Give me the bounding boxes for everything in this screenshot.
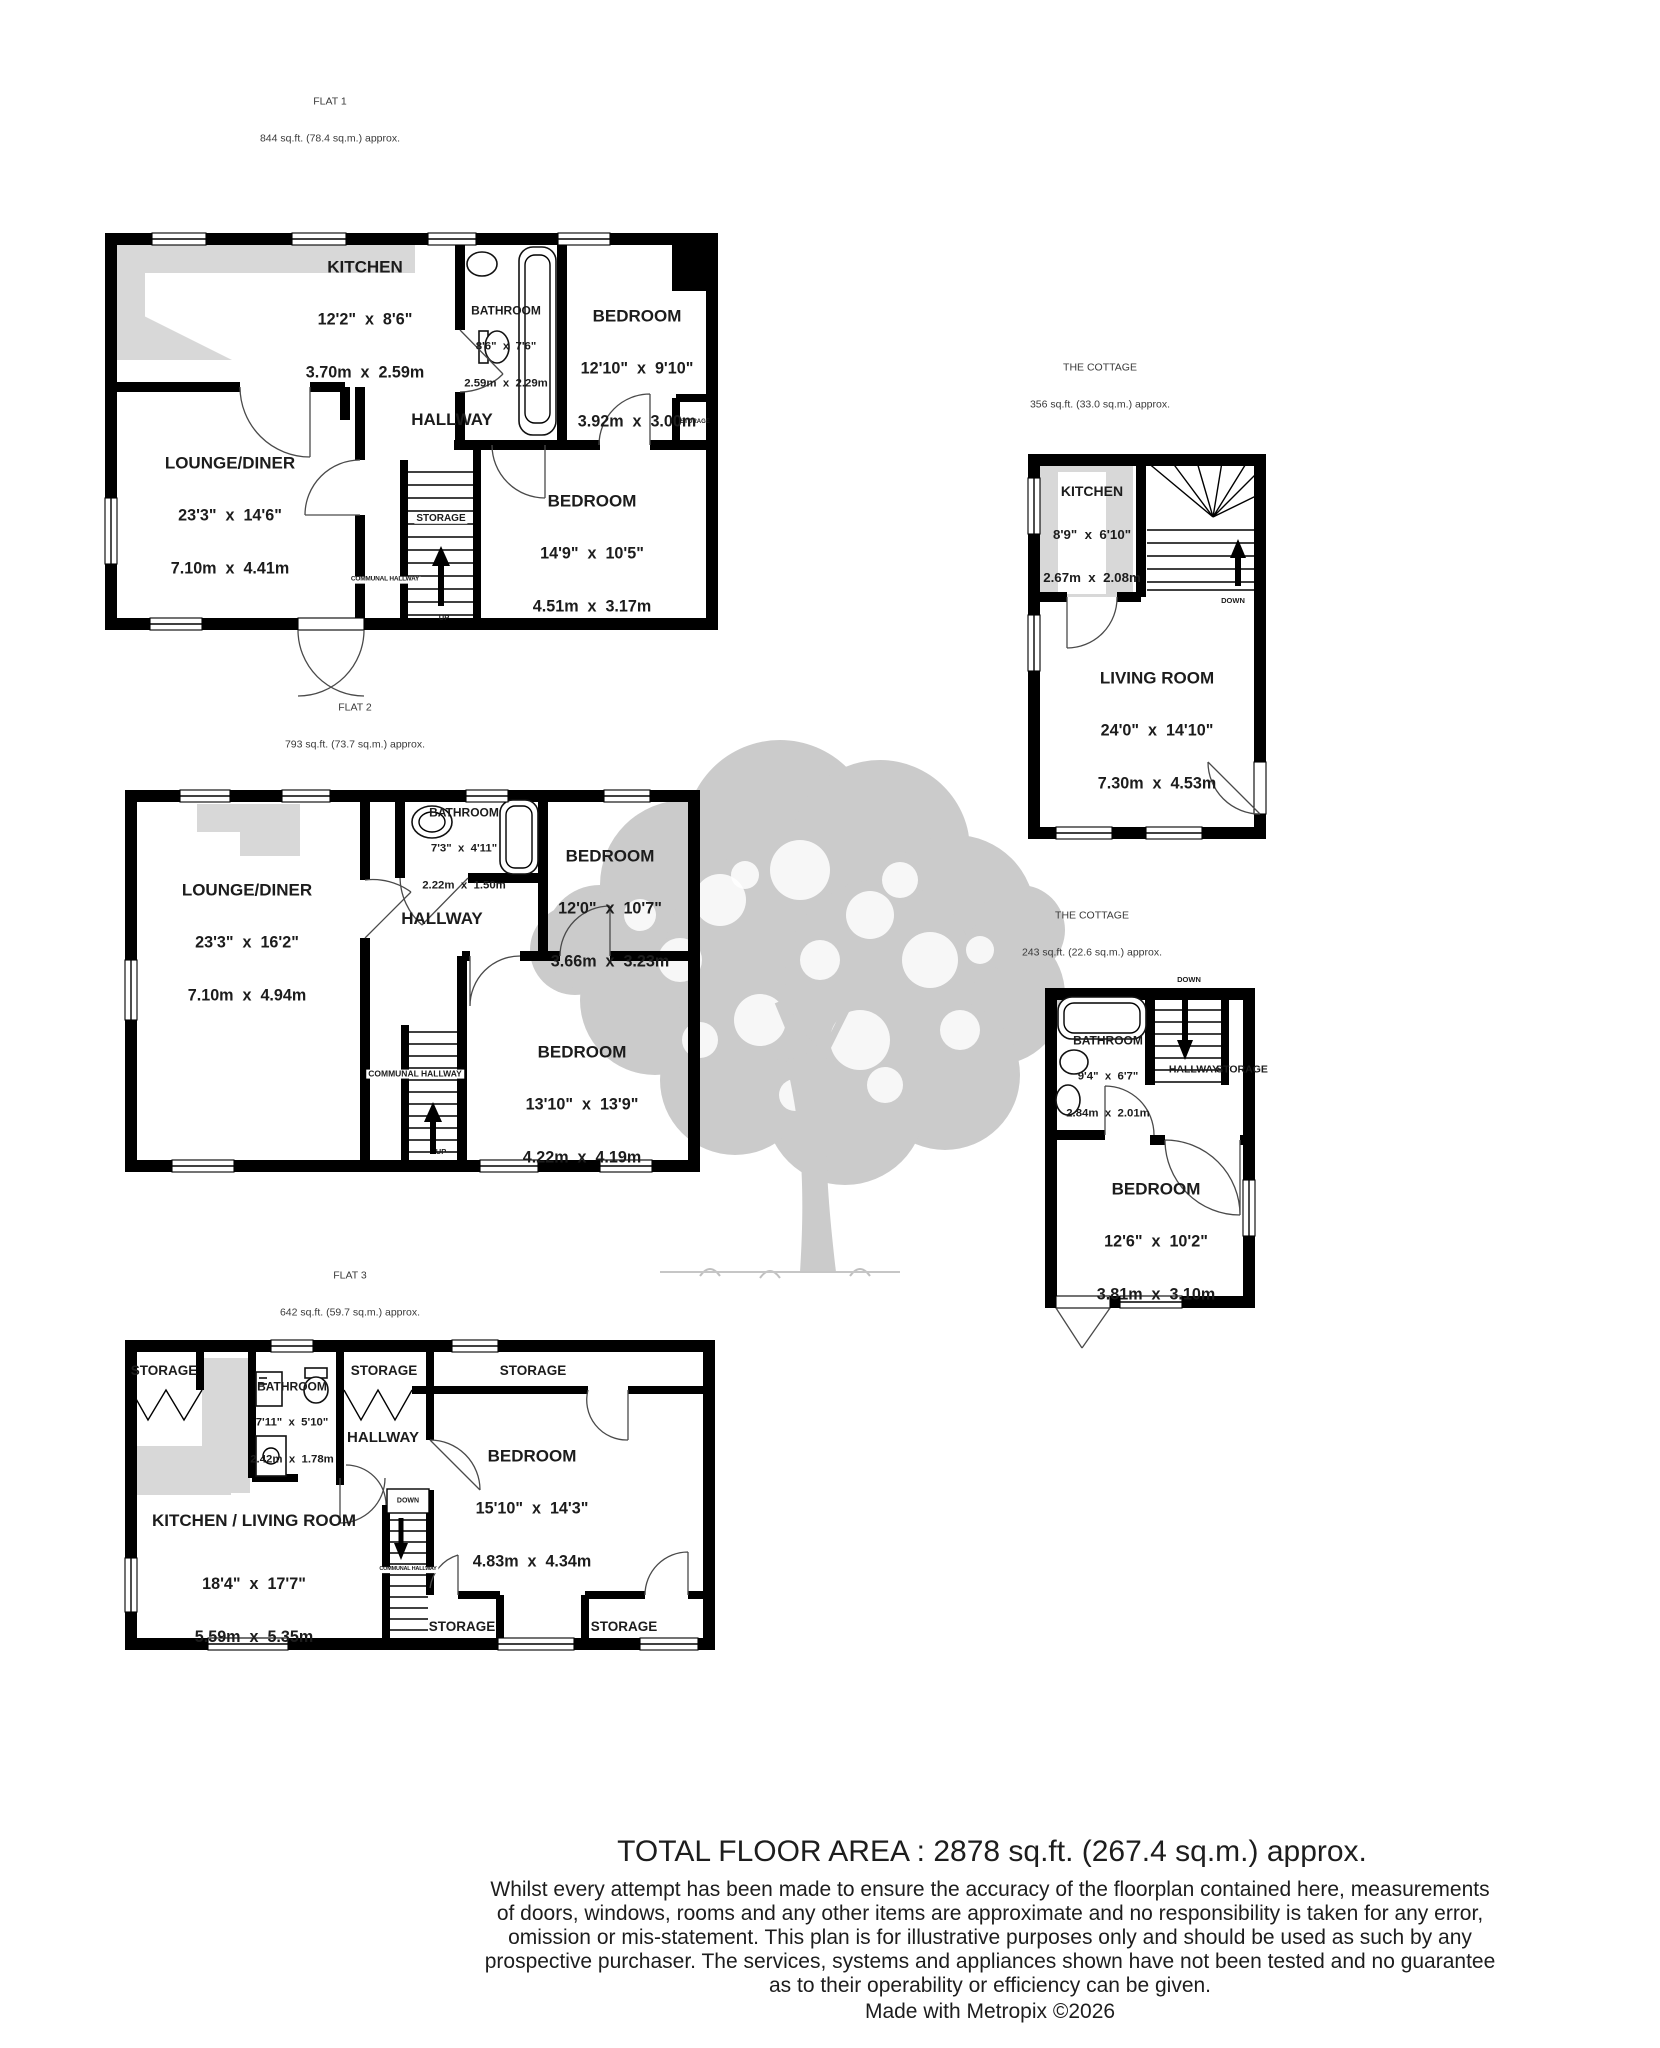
- disclaimer-line-4: prospective purchaser. The services, sys…: [485, 1950, 1496, 1974]
- cottage-ground-down-label: DOWN: [1221, 597, 1245, 605]
- cottage-ground-title: THE COTTAGE 356 sq.ft. (33.0 sq.m.) appr…: [1030, 337, 1170, 424]
- flat1-up-label: UP: [439, 614, 449, 622]
- flat3-communal-hallway-label: COMMUNAL HALLWAY: [377, 1567, 438, 1573]
- flat3-bedroom-label: BEDROOM 15'10" x 14'3" 4.83m x 4.34m: [473, 1413, 591, 1588]
- cottage-first-title: THE COTTAGE 243 sq.ft. (22.6 sq.m.) appr…: [1022, 885, 1162, 972]
- flat1-bedroom1-label: BEDROOM 12'10" x 9'10" 3.92m x 3.00m: [578, 273, 696, 448]
- cottage-kitchen-label: KITCHEN 8'9" x 6'10" 2.67m x 2.08m: [1043, 455, 1141, 599]
- cottage-ground-title-area: 356 sq.ft. (33.0 sq.m.) approx.: [1030, 399, 1170, 411]
- flat3-title-area: 642 sq.ft. (59.7 sq.m.) approx.: [280, 1307, 420, 1319]
- flat2-title-name: FLAT 2: [285, 701, 425, 713]
- flat1-lounge-label: LOUNGE/DINER 23'3" x 14'6" 7.10m x 4.41m: [165, 420, 295, 595]
- floorplan-drawing: .w12{stroke:#000;stroke-width:12;fill:no…: [0, 0, 1660, 2048]
- flat2-title: FLAT 2 793 sq.ft. (73.7 sq.m.) approx.: [285, 677, 425, 764]
- flat1-stairs-storage-label: STORAGE: [414, 514, 467, 524]
- flat1-communal-hallway-label: COMMUNAL HALLWAY: [349, 577, 421, 584]
- cottage-living-room-label: LIVING ROOM 24'0" x 14'10" 7.30m x 4.53m: [1098, 635, 1216, 810]
- flat2-communal-hallway-label: COMMUNAL HALLWAY: [366, 1070, 464, 1079]
- total-floor-area: TOTAL FLOOR AREA : 2878 sq.ft. (267.4 sq…: [617, 1835, 1367, 1869]
- disclaimer-line-1: Whilst every attempt has been made to en…: [490, 1878, 1489, 1902]
- metropix-credit: Made with Metropix ©2026: [865, 2000, 1115, 2024]
- cottage-first-bedroom-label: BEDROOM 12'6" x 10'2" 3.81m x 3.10m: [1097, 1146, 1215, 1321]
- flat3-storage-br-label: STORAGE: [591, 1620, 658, 1634]
- flat2-bathroom-label: BATHROOM 7'3" x 4'11" 2.22m x 1.50m: [422, 781, 506, 904]
- disclaimer-line-3: omission or mis-statement. This plan is …: [508, 1926, 1472, 1950]
- flat3-kitchen-living-label: KITCHEN / LIVING ROOM 18'4" x 17'7" 5.59…: [152, 1477, 356, 1663]
- flat3-bathroom-label: BATHROOM 7'11" x 5'10" 2.42m x 1.78m: [248, 1355, 336, 1478]
- flat1-bedroom2-label: BEDROOM 14'9" x 10'5" 4.51m x 3.17m: [533, 458, 651, 633]
- flat3-storage-tl-label: STORAGE: [131, 1364, 198, 1378]
- flat1-bathroom-label: BATHROOM 8'6" x 7'6" 2.59m x 2.29m: [464, 279, 548, 402]
- floorplan-page: .w12{stroke:#000;stroke-width:12;fill:no…: [0, 0, 1660, 2048]
- flat2-bedroom2-label: BEDROOM 13'10" x 13'9" 4.22m x 4.19m: [523, 1009, 641, 1184]
- flat1-hallway-label: HALLWAY: [411, 411, 493, 429]
- flat3-storage-tr-label: STORAGE: [500, 1364, 567, 1378]
- flat2-bedroom1-label: BEDROOM 12'0" x 10'7" 3.66m x 3.23m: [551, 813, 669, 988]
- flat3-storage-tm-label: STORAGE: [351, 1364, 418, 1378]
- cottage-first-title-area: 243 sq.ft. (22.6 sq.m.) approx.: [1022, 947, 1162, 959]
- flat2-up-label: UP: [436, 1148, 446, 1156]
- cottage-first-storage-label: STORAGE: [1216, 1065, 1268, 1076]
- disclaimer-line-5: as to their operability or efficiency ca…: [769, 1974, 1211, 1998]
- flat3-hallway-label: HALLWAY: [347, 1430, 419, 1446]
- flat2-hallway-label: HALLWAY: [401, 910, 483, 928]
- cottage-first-down-label: DOWN: [1175, 976, 1203, 984]
- disclaimer-line-2: of doors, windows, rooms and any other i…: [497, 1902, 1483, 1926]
- flat3-title: FLAT 3 642 sq.ft. (59.7 sq.m.) approx.: [280, 1245, 420, 1332]
- flat1-title-area: 844 sq.ft. (78.4 sq.m.) approx.: [260, 133, 400, 145]
- flat1-small-storage-label: STORAGE: [680, 419, 710, 425]
- flat1-title: FLAT 1 844 sq.ft. (78.4 sq.m.) approx.: [260, 71, 400, 158]
- flat1-title-name: FLAT 1: [260, 95, 400, 107]
- cottage-first-bathroom-label: BATHROOM 9'4" x 6'7" 2.84m x 2.01m: [1064, 1009, 1152, 1132]
- cottage-first-hallway-label: HALLWAY: [1169, 1065, 1219, 1076]
- cottage-ground-title-name: THE COTTAGE: [1030, 361, 1170, 373]
- flat3-title-name: FLAT 3: [280, 1269, 420, 1281]
- flat2-lounge-label: LOUNGE/DINER 23'3" x 16'2" 7.10m x 4.94m: [182, 847, 312, 1022]
- flat1-kitchen-label: KITCHEN 12'2" x 8'6" 3.70m x 2.59m: [306, 224, 424, 399]
- flat3-down-label: DOWN: [397, 1497, 419, 1504]
- cottage-first-title-name: THE COTTAGE: [1022, 909, 1162, 921]
- flat2-title-area: 793 sq.ft. (73.7 sq.m.) approx.: [285, 739, 425, 751]
- flat3-storage-bm-label: STORAGE: [429, 1620, 496, 1634]
